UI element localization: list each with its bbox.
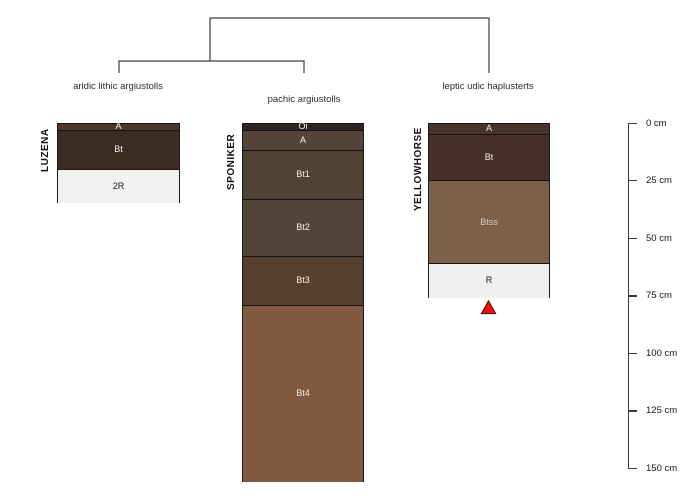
horizon-label: Btss (480, 218, 498, 227)
horizon-label: Bt1 (296, 170, 310, 179)
profile-sketch-sponiker: OiABt1Bt2Bt3Bt4 (242, 123, 364, 482)
depth-axis-tick (628, 353, 637, 354)
profile-name-yellowhorse: YELLOWHORSE (413, 127, 424, 211)
horizon-label: Bt (485, 153, 494, 162)
depth-axis-tick (628, 410, 637, 411)
horizon-a: A (243, 130, 363, 151)
profile-sketch-luzena: ABt2R (57, 123, 180, 204)
depth-axis-tick-label: 100 cm (646, 348, 677, 359)
depth-axis-tick (628, 180, 637, 181)
soil-profile-figure: aridic lithic argiustolls pachic argiust… (0, 0, 700, 500)
depth-axis-tick (628, 123, 637, 124)
red-triangle-marker (482, 301, 496, 314)
depth-axis-tick (628, 238, 637, 239)
dendrogram (119, 18, 489, 73)
depth-axis-tick-label: 125 cm (646, 405, 677, 416)
depth-axis-tick-label: 50 cm (646, 233, 672, 244)
horizon-label: R (486, 276, 493, 285)
horizon-bt3: Bt3 (243, 256, 363, 304)
horizon-label: A (486, 124, 492, 133)
horizon-oi: Oi (243, 123, 363, 130)
depth-axis-tick-label: 75 cm (646, 290, 672, 301)
taxon-label-leptic-udic-haplusterts: leptic udic haplusterts (378, 81, 598, 92)
depth-axis-tick-label: 150 cm (646, 463, 677, 474)
horizon-label: Bt4 (296, 389, 310, 398)
horizon-bt: Bt (58, 130, 179, 169)
horizon-label: Bt (114, 145, 123, 154)
depth-axis-tick-label: 25 cm (646, 175, 672, 186)
depth-axis-tick (628, 295, 637, 296)
taxon-label-pachic-argiustolls: pachic argiustolls (194, 94, 414, 105)
horizon-label: Bt2 (296, 223, 310, 232)
horizon-label: A (300, 136, 306, 145)
horizon-btss: Btss (429, 180, 549, 263)
horizon-2r: 2R (58, 169, 179, 204)
horizon-bt4: Bt4 (243, 305, 363, 482)
profile-name-sponiker: SPONIKER (226, 134, 237, 190)
depth-axis-tick (628, 468, 637, 469)
horizon-label: 2R (113, 182, 125, 191)
horizon-a: A (429, 123, 549, 135)
horizon-bt2: Bt2 (243, 199, 363, 257)
horizon-bt: Bt (429, 134, 549, 180)
horizon-bt1: Bt1 (243, 150, 363, 198)
taxon-label-aridic-lithic-argiustolls: aridic lithic argiustolls (8, 81, 228, 92)
horizon-label: Bt3 (296, 276, 310, 285)
horizon-r: R (429, 263, 549, 298)
depth-axis-tick-label: 0 cm (646, 118, 667, 129)
profile-sketch-yellowhorse: ABtBtssR (428, 123, 550, 298)
profile-name-luzena: LUZENA (40, 128, 51, 172)
horizon-a: A (58, 123, 179, 130)
